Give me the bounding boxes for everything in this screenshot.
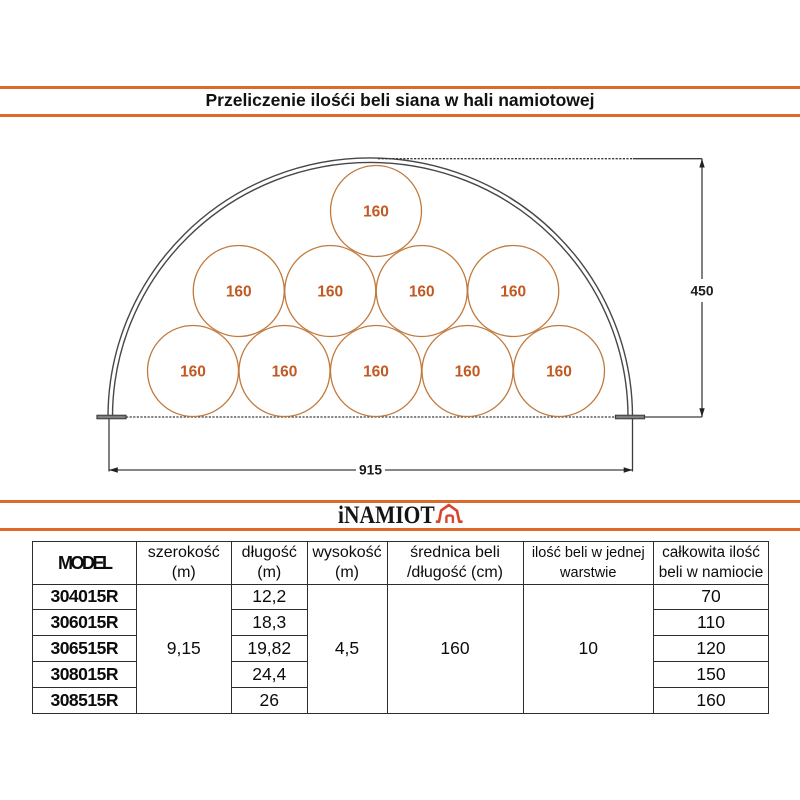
svg-text:160: 160: [363, 204, 389, 221]
svg-text:160: 160: [180, 364, 206, 381]
svg-text:160: 160: [317, 284, 343, 301]
svg-text:160: 160: [409, 284, 435, 301]
svg-text:160: 160: [272, 364, 298, 381]
svg-text:160: 160: [455, 364, 481, 381]
svg-text:160: 160: [226, 284, 252, 301]
svg-text:915: 915: [359, 463, 382, 478]
svg-text:160: 160: [363, 364, 389, 381]
svg-text:160: 160: [546, 364, 572, 381]
svg-text:160: 160: [500, 284, 526, 301]
svg-text:450: 450: [690, 284, 713, 299]
